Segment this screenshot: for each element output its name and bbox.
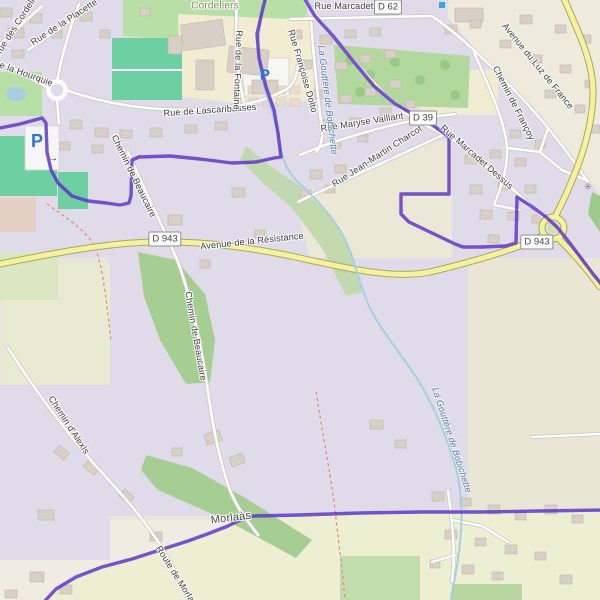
map-graphics [0, 0, 600, 600]
map-canvas[interactable]: CordeliersRue des CordeliersRue de la Pl… [0, 0, 600, 600]
